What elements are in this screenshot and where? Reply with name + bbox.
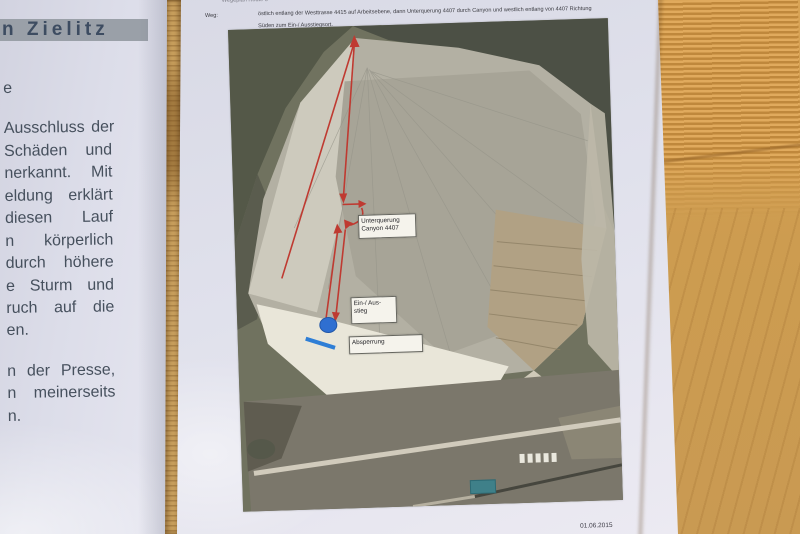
entry-exit-marker xyxy=(320,317,337,333)
label-ein-ausstieg-line1: Ein-/ Aus- xyxy=(354,299,383,308)
label-absperrung: Absperrung xyxy=(349,334,424,354)
text-line: Schäden und xyxy=(4,141,112,163)
text-line: n. xyxy=(8,406,116,428)
label-ein-ausstieg: Ein-/ Aus- stieg xyxy=(350,296,397,324)
text-line: e Sturm und xyxy=(6,276,114,298)
aerial-photo-svg xyxy=(228,18,623,512)
left-document-page: n Zielitz e Ausschluss der Schäden und n… xyxy=(0,0,170,534)
route-description-line1: östlich entlang der Westtrasse 4415 auf … xyxy=(258,5,592,16)
photographed-documents-on-table: n Zielitz e Ausschluss der Schäden und n… xyxy=(0,0,800,534)
text-line: n der Presse, xyxy=(7,361,115,383)
aerial-photo-spoil-heap: Unterquerung Canyon 4407 Ein-/ Aus- stie… xyxy=(228,18,623,512)
label-absperrung-text: Absperrung xyxy=(352,337,401,346)
clipped-title-line: Wegeplan Route 6 xyxy=(222,0,268,3)
text-line: durch höhere xyxy=(6,253,114,275)
label-unterquerung-line2: Canyon 4407 xyxy=(361,224,398,233)
page-curl-shadow xyxy=(138,0,167,534)
text-line: n körperlich xyxy=(5,231,113,253)
text-line: nerkannt. Mit xyxy=(4,163,112,185)
weg-label: Weg: xyxy=(205,12,218,18)
blue-roof-building xyxy=(470,480,495,494)
text-line: n meinerseits xyxy=(7,383,115,405)
label-ein-ausstieg-line2: stieg xyxy=(354,306,383,315)
text-line: diesen Lauf xyxy=(5,208,113,230)
text-line: Ausschluss der xyxy=(4,118,112,140)
text-line: e xyxy=(3,78,111,100)
date-stamp: 01.06.2015 xyxy=(580,521,613,529)
text-line: eldung erklärt xyxy=(5,186,113,208)
text-line: en. xyxy=(6,320,114,342)
text-line: ruch auf die xyxy=(6,298,114,320)
left-page-body-text: e Ausschluss der Schäden und nerkannt. M… xyxy=(2,0,117,534)
label-unterquerung: Unterquerung Canyon 4407 xyxy=(358,213,417,239)
